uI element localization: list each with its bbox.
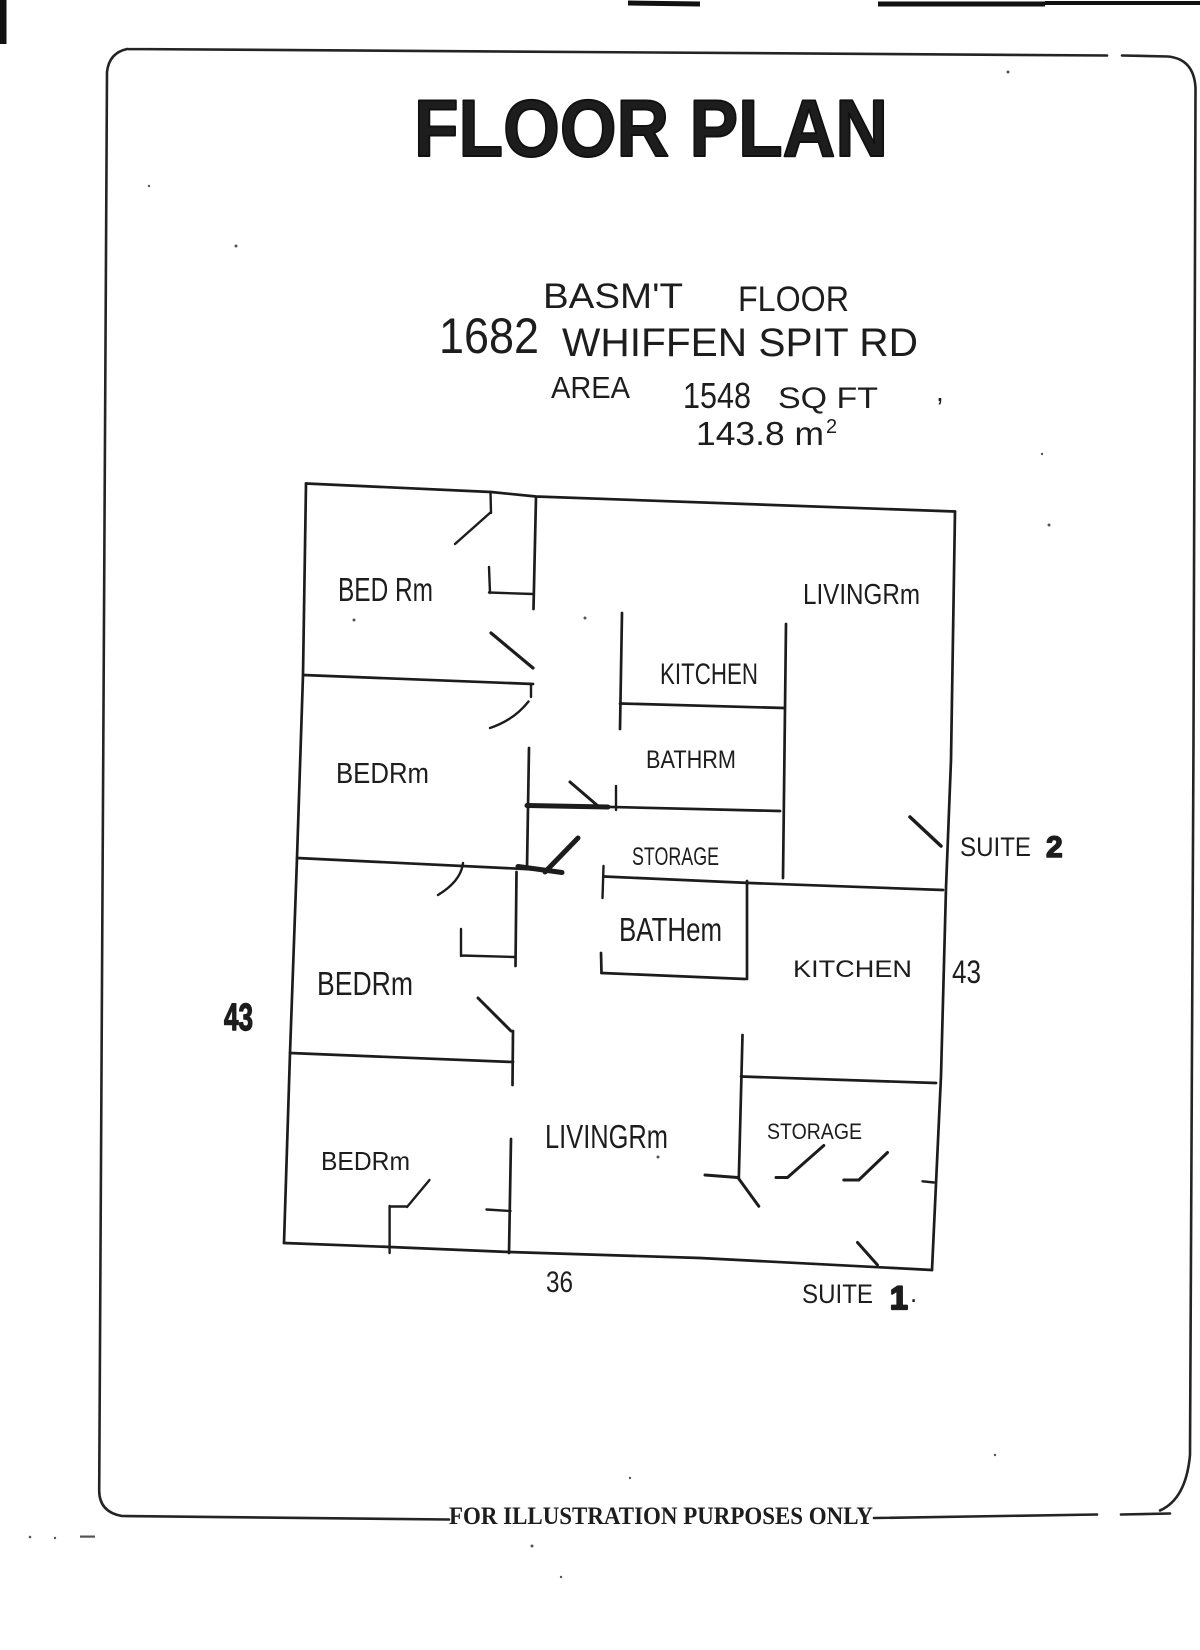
svg-text:,: , bbox=[936, 376, 944, 407]
svg-text:1548: 1548 bbox=[683, 375, 751, 416]
svg-text:BEDRm: BEDRm bbox=[321, 1146, 410, 1176]
svg-text:1: 1 bbox=[890, 1280, 908, 1316]
svg-text:43: 43 bbox=[952, 954, 981, 990]
svg-text:WHIFFEN SPIT RD: WHIFFEN SPIT RD bbox=[562, 321, 918, 365]
svg-text:SUITE: SUITE bbox=[960, 832, 1031, 862]
svg-text:2: 2 bbox=[1046, 831, 1063, 864]
svg-text:BED Rm: BED Rm bbox=[338, 571, 433, 608]
svg-text:BEDRm: BEDRm bbox=[317, 965, 413, 1002]
svg-text:SUITE: SUITE bbox=[802, 1279, 873, 1309]
svg-text:BATHem: BATHem bbox=[619, 911, 722, 948]
svg-text:BATHRM: BATHRM bbox=[646, 746, 736, 774]
svg-text:BASM'T: BASM'T bbox=[543, 277, 683, 316]
svg-text:36: 36 bbox=[546, 1266, 573, 1299]
svg-text:2: 2 bbox=[826, 416, 837, 438]
svg-text:STORAGE: STORAGE bbox=[632, 843, 719, 871]
svg-text:1682: 1682 bbox=[439, 308, 539, 364]
svg-text:BEDRm: BEDRm bbox=[336, 758, 429, 790]
svg-text:LIVINGRm: LIVINGRm bbox=[803, 579, 920, 611]
svg-text:FLOOR PLAN: FLOOR PLAN bbox=[414, 84, 888, 174]
svg-text:SQ FT: SQ FT bbox=[778, 382, 878, 415]
svg-text:LIVINGRm: LIVINGRm bbox=[545, 1118, 668, 1155]
svg-text:AREA: AREA bbox=[551, 370, 630, 405]
svg-text:KITCHEN: KITCHEN bbox=[793, 956, 912, 983]
svg-text:STORAGE: STORAGE bbox=[767, 1119, 862, 1144]
svg-text:.: . bbox=[910, 1278, 917, 1308]
svg-text:FLOOR: FLOOR bbox=[738, 280, 849, 319]
svg-text:43: 43 bbox=[224, 997, 253, 1039]
svg-text:KITCHEN: KITCHEN bbox=[660, 658, 758, 691]
svg-text:FOR ILLUSTRATION PURPOSES ONLY: FOR ILLUSTRATION PURPOSES ONLY bbox=[449, 1503, 873, 1530]
svg-text:143.8 m: 143.8 m bbox=[696, 415, 824, 452]
